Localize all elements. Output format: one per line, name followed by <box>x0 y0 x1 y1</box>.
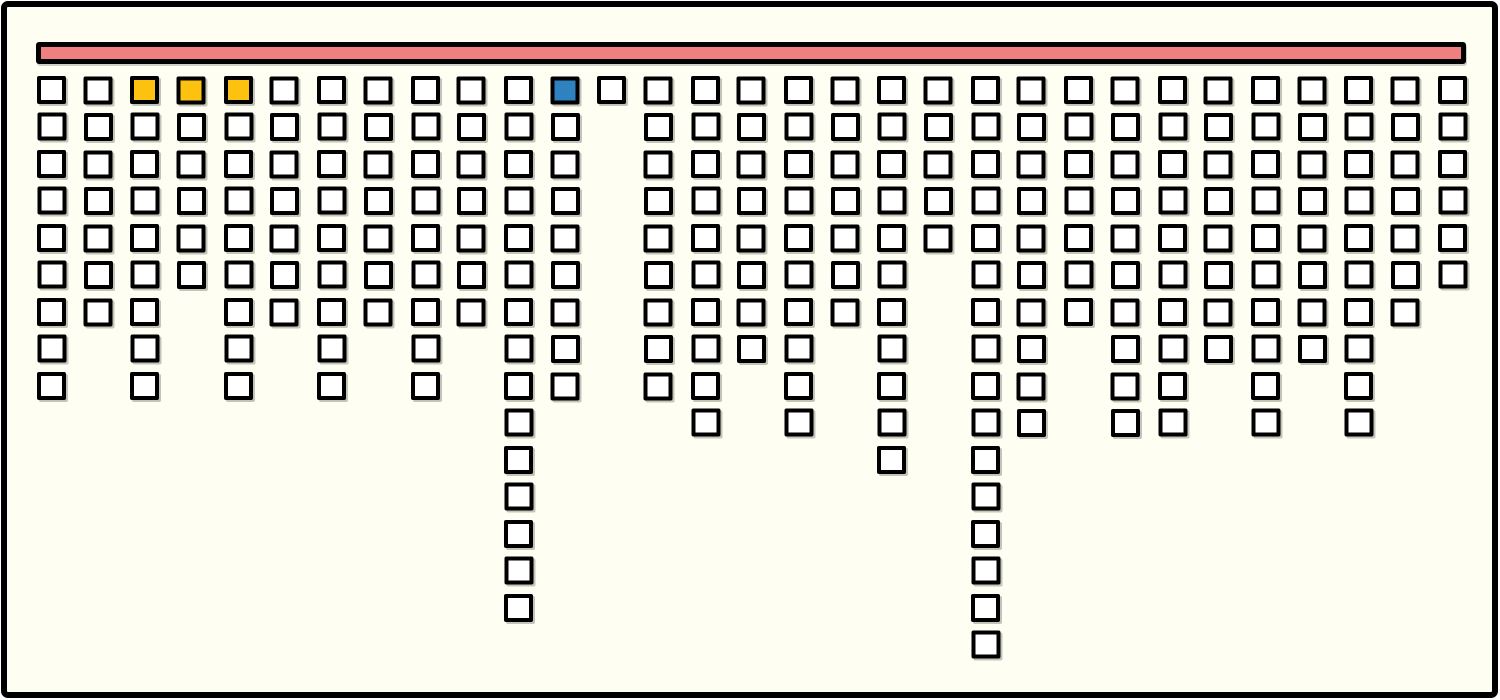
grid-cell <box>784 76 813 104</box>
grid-cell <box>504 372 533 400</box>
grid-cell <box>551 335 580 363</box>
grid-cell <box>1344 224 1373 252</box>
grid-cell <box>1298 113 1327 141</box>
waffle-column-28 <box>1298 76 1327 363</box>
grid-cell <box>691 335 720 363</box>
grid-cell <box>737 151 766 179</box>
grid-cell <box>1438 113 1467 141</box>
grid-cell <box>691 298 720 326</box>
grid-cell <box>1110 299 1139 327</box>
waffle-column-4 <box>177 76 206 289</box>
waffle-column-25 <box>1158 76 1187 437</box>
grid-cell <box>1110 225 1139 253</box>
grid-cell <box>1110 77 1139 105</box>
grid-cell <box>130 298 159 326</box>
waffle-column-13 <box>597 76 626 104</box>
grid-cell <box>457 77 486 105</box>
grid-cell <box>1017 409 1046 437</box>
grid-cell <box>1438 261 1467 289</box>
grid-cell <box>691 409 720 437</box>
grid-cell <box>1017 77 1046 105</box>
grid-cell <box>971 446 1000 474</box>
grid-cell <box>971 594 1000 622</box>
grid-cell <box>691 150 720 178</box>
grid-cell <box>785 261 814 289</box>
grid-cell <box>411 224 440 252</box>
highlighted-cell-gold <box>177 77 206 105</box>
waffle-grid <box>37 76 1467 659</box>
grid-cell <box>224 224 253 252</box>
grid-cell <box>318 113 347 141</box>
grid-cell <box>411 150 440 178</box>
grid-cell <box>878 409 907 437</box>
grid-cell <box>364 187 393 215</box>
grid-cell <box>177 225 206 253</box>
grid-cell <box>785 335 814 363</box>
grid-cell <box>131 261 160 289</box>
grid-cell <box>1298 335 1327 363</box>
grid-cell <box>830 77 859 105</box>
grid-cell <box>364 261 393 289</box>
grid-cell <box>270 113 299 141</box>
grid-cell <box>84 113 113 141</box>
grid-cell <box>971 113 1000 141</box>
highlighted-cell-gold <box>130 76 159 104</box>
grid-cell <box>691 261 720 289</box>
grid-cell <box>131 187 160 215</box>
grid-cell <box>411 298 440 326</box>
grid-cell <box>411 372 440 400</box>
grid-cell <box>504 594 533 622</box>
grid-cell <box>318 261 347 289</box>
grid-cell <box>457 187 486 215</box>
grid-cell <box>1064 298 1093 326</box>
grid-cell <box>224 113 253 141</box>
grid-cell <box>643 77 672 105</box>
grid-cell <box>1204 299 1233 327</box>
grid-cell <box>1251 409 1280 437</box>
grid-cell <box>177 261 206 289</box>
grid-cell <box>737 225 766 253</box>
grid-cell <box>785 187 814 215</box>
grid-cell <box>1344 372 1373 400</box>
grid-cell <box>644 261 673 289</box>
grid-cell <box>1017 187 1046 215</box>
grid-cell <box>1158 298 1187 326</box>
grid-cell <box>1110 373 1139 401</box>
grid-cell <box>1017 261 1046 289</box>
grid-cell <box>1204 77 1233 105</box>
waffle-column-9 <box>411 76 440 400</box>
grid-cell <box>131 335 160 363</box>
grid-cell <box>1158 224 1187 252</box>
grid-cell <box>37 224 66 252</box>
waffle-column-1 <box>37 76 66 400</box>
grid-cell <box>317 224 346 252</box>
grid-cell <box>737 187 766 215</box>
waffle-column-5 <box>224 76 253 400</box>
grid-cell <box>270 77 299 105</box>
grid-cell <box>551 261 580 289</box>
grid-cell <box>878 187 907 215</box>
grid-cell <box>1297 225 1326 253</box>
grid-cell <box>1251 187 1280 215</box>
grid-cell <box>644 335 673 363</box>
grid-cell <box>270 261 299 289</box>
waffle-column-19 <box>877 76 906 474</box>
grid-cell <box>644 113 673 141</box>
grid-cell <box>551 187 580 215</box>
grid-cell <box>1251 76 1280 104</box>
grid-cell <box>318 335 347 363</box>
grid-cell <box>270 151 299 179</box>
grid-cell <box>737 77 766 105</box>
waffle-column-21 <box>971 76 1000 659</box>
grid-cell <box>504 298 533 326</box>
grid-cell <box>877 446 906 474</box>
grid-cell <box>691 372 720 400</box>
grid-cell <box>224 335 253 363</box>
grid-cell <box>1251 298 1280 326</box>
grid-cell <box>457 299 486 327</box>
grid-cell <box>317 372 346 400</box>
grid-cell <box>784 372 813 400</box>
grid-cell <box>1065 187 1094 215</box>
grid-cell <box>550 151 579 179</box>
grid-cell <box>737 113 766 141</box>
waffle-column-6 <box>270 76 299 326</box>
grid-cell <box>1345 261 1374 289</box>
grid-cell <box>224 372 253 400</box>
grid-cell <box>504 483 533 511</box>
grid-cell <box>737 335 766 363</box>
grid-cell <box>1391 187 1420 215</box>
grid-cell <box>1111 187 1140 215</box>
grid-cell <box>830 151 859 179</box>
grid-cell <box>737 299 766 327</box>
grid-cell <box>364 113 393 141</box>
grid-cell <box>643 151 672 179</box>
waffle-column-7 <box>317 76 346 400</box>
grid-cell <box>1204 187 1233 215</box>
grid-cell <box>1204 225 1233 253</box>
grid-cell <box>411 335 440 363</box>
grid-cell <box>317 298 346 326</box>
grid-cell <box>1204 261 1233 289</box>
grid-cell <box>457 225 486 253</box>
grid-cell <box>1438 224 1467 252</box>
waffle-column-29 <box>1344 76 1373 437</box>
grid-cell <box>504 76 533 104</box>
grid-cell <box>1297 77 1326 105</box>
highlighted-cell-blue <box>550 77 579 105</box>
grid-cell <box>643 373 672 401</box>
grid-cell <box>971 335 1000 363</box>
grid-cell <box>504 261 533 289</box>
grid-cell <box>784 224 813 252</box>
grid-cell <box>1158 335 1187 363</box>
grid-cell <box>84 261 113 289</box>
grid-cell <box>318 187 347 215</box>
grid-cell <box>177 113 206 141</box>
grid-cell <box>84 187 113 215</box>
waffle-column-8 <box>364 76 393 326</box>
waffle-column-23 <box>1064 76 1093 326</box>
waffle-column-22 <box>1017 76 1046 437</box>
grid-cell <box>504 113 533 141</box>
grid-cell <box>411 76 440 104</box>
grid-cell <box>457 113 486 141</box>
grid-cell <box>504 409 533 437</box>
header-bar <box>36 42 1466 64</box>
waffle-column-2 <box>84 76 113 326</box>
grid-cell <box>504 557 533 585</box>
grid-cell <box>224 298 253 326</box>
grid-cell <box>878 335 907 363</box>
grid-cell <box>924 113 953 141</box>
grid-cell <box>643 225 672 253</box>
grid-cell <box>830 299 859 327</box>
grid-cell <box>1251 113 1280 141</box>
grid-cell <box>1111 409 1140 437</box>
grid-cell <box>363 225 392 253</box>
grid-cell <box>131 113 160 141</box>
grid-cell <box>363 151 392 179</box>
grid-cell <box>924 151 953 179</box>
grid-cell <box>597 76 626 104</box>
grid-cell <box>971 372 1000 400</box>
grid-cell <box>971 409 1000 437</box>
grid-cell <box>1297 299 1326 327</box>
grid-cell <box>1017 373 1046 401</box>
grid-cell <box>831 261 860 289</box>
grid-cell <box>1158 372 1187 400</box>
grid-cell <box>83 151 112 179</box>
grid-cell <box>224 187 253 215</box>
grid-cell <box>877 150 906 178</box>
grid-cell <box>38 335 67 363</box>
grid-cell <box>504 187 533 215</box>
waffle-column-30 <box>1391 76 1420 326</box>
grid-cell <box>971 224 1000 252</box>
chart-frame <box>1 1 1498 698</box>
grid-cell <box>130 150 159 178</box>
grid-cell <box>737 261 766 289</box>
waffle-column-16 <box>737 76 766 363</box>
grid-cell <box>130 224 159 252</box>
waffle-column-27 <box>1251 76 1280 437</box>
grid-cell <box>831 187 860 215</box>
grid-cell <box>877 224 906 252</box>
grid-cell <box>411 261 440 289</box>
grid-cell <box>785 409 814 437</box>
grid-cell <box>971 261 1000 289</box>
grid-cell <box>1390 151 1419 179</box>
grid-cell <box>1438 76 1467 104</box>
waffle-column-3 <box>130 76 159 400</box>
grid-cell <box>878 261 907 289</box>
grid-cell <box>38 187 67 215</box>
grid-cell <box>37 76 66 104</box>
waffle-column-20 <box>924 76 953 252</box>
waffle-column-24 <box>1111 76 1140 437</box>
grid-cell <box>504 520 533 548</box>
grid-cell <box>1345 113 1374 141</box>
grid-cell <box>504 335 533 363</box>
grid-cell <box>38 261 67 289</box>
grid-cell <box>1390 225 1419 253</box>
grid-cell <box>1390 299 1419 327</box>
grid-cell <box>1344 298 1373 326</box>
grid-cell <box>1064 76 1093 104</box>
grid-cell <box>457 151 486 179</box>
grid-cell <box>971 483 1000 511</box>
grid-cell <box>830 225 859 253</box>
grid-cell <box>363 299 392 327</box>
grid-cell <box>971 520 1000 548</box>
grid-cell <box>504 224 533 252</box>
grid-cell <box>691 187 720 215</box>
grid-cell <box>1438 187 1467 215</box>
grid-cell <box>1064 224 1093 252</box>
waffle-column-15 <box>691 76 720 437</box>
grid-cell <box>1111 113 1140 141</box>
grid-cell <box>550 373 579 401</box>
grid-cell <box>1017 113 1046 141</box>
grid-cell <box>1345 409 1374 437</box>
grid-cell <box>785 113 814 141</box>
grid-cell <box>1017 299 1046 327</box>
grid-cell <box>37 150 66 178</box>
grid-cell <box>37 298 66 326</box>
grid-cell <box>1158 113 1187 141</box>
grid-cell <box>877 372 906 400</box>
grid-cell <box>1111 261 1140 289</box>
grid-cell <box>971 557 1000 585</box>
grid-cell <box>1111 335 1140 363</box>
grid-cell <box>1344 76 1373 104</box>
grid-cell <box>504 150 533 178</box>
grid-cell <box>971 298 1000 326</box>
grid-cell <box>550 225 579 253</box>
grid-cell <box>878 113 907 141</box>
grid-cell <box>1298 187 1327 215</box>
grid-cell <box>1251 150 1280 178</box>
grid-cell <box>177 151 206 179</box>
grid-cell <box>177 187 206 215</box>
grid-cell <box>1345 187 1374 215</box>
grid-cell <box>224 150 253 178</box>
grid-cell <box>1251 335 1280 363</box>
waffle-column-18 <box>831 76 860 326</box>
waffle-column-12 <box>551 76 580 400</box>
grid-cell <box>270 225 299 253</box>
grid-cell <box>224 261 253 289</box>
grid-cell <box>1158 187 1187 215</box>
grid-cell <box>1065 261 1094 289</box>
grid-cell <box>1391 261 1420 289</box>
grid-cell <box>1064 150 1093 178</box>
grid-cell <box>924 77 953 105</box>
grid-cell <box>1297 151 1326 179</box>
grid-cell <box>1344 150 1373 178</box>
grid-cell <box>1158 409 1187 437</box>
grid-cell <box>1251 372 1280 400</box>
grid-cell <box>971 76 1000 104</box>
grid-cell <box>831 113 860 141</box>
grid-cell <box>971 150 1000 178</box>
grid-cell <box>1204 151 1233 179</box>
grid-cell <box>1158 261 1187 289</box>
grid-cell <box>1251 224 1280 252</box>
grid-cell <box>784 150 813 178</box>
grid-cell <box>1158 150 1187 178</box>
grid-cell <box>130 372 159 400</box>
grid-cell <box>971 631 1000 659</box>
grid-cell <box>551 113 580 141</box>
grid-cell <box>317 76 346 104</box>
waffle-column-26 <box>1204 76 1233 363</box>
grid-cell <box>691 224 720 252</box>
grid-cell <box>317 150 346 178</box>
grid-cell <box>270 187 299 215</box>
grid-cell <box>38 113 67 141</box>
grid-cell <box>457 261 486 289</box>
waffle-column-31 <box>1438 76 1467 289</box>
grid-cell <box>270 299 299 327</box>
waffle-column-11 <box>504 76 533 622</box>
grid-cell <box>83 77 112 105</box>
grid-cell <box>691 76 720 104</box>
grid-cell <box>1017 335 1046 363</box>
grid-cell <box>644 187 673 215</box>
grid-cell <box>504 446 533 474</box>
grid-cell <box>1017 225 1046 253</box>
waffle-column-14 <box>644 76 673 400</box>
grid-cell <box>691 113 720 141</box>
grid-cell <box>1065 113 1094 141</box>
grid-cell <box>1298 261 1327 289</box>
highlighted-cell-gold <box>224 76 253 104</box>
waffle-column-10 <box>457 76 486 326</box>
grid-cell <box>1345 335 1374 363</box>
grid-cell <box>643 299 672 327</box>
grid-cell <box>550 299 579 327</box>
grid-cell <box>924 187 953 215</box>
grid-cell <box>877 298 906 326</box>
grid-cell <box>971 187 1000 215</box>
grid-cell <box>411 113 440 141</box>
grid-cell <box>877 76 906 104</box>
grid-cell <box>1251 261 1280 289</box>
grid-cell <box>1158 76 1187 104</box>
grid-cell <box>1110 151 1139 179</box>
waffle-column-17 <box>784 76 813 437</box>
grid-cell <box>1204 113 1233 141</box>
grid-cell <box>411 187 440 215</box>
grid-cell <box>784 298 813 326</box>
grid-cell <box>1390 77 1419 105</box>
grid-cell <box>1204 335 1233 363</box>
grid-cell <box>37 372 66 400</box>
grid-cell <box>1438 150 1467 178</box>
grid-cell <box>1391 113 1420 141</box>
grid-cell <box>83 225 112 253</box>
grid-cell <box>83 299 112 327</box>
grid-cell <box>924 225 953 253</box>
grid-cell <box>1017 151 1046 179</box>
grid-cell <box>363 77 392 105</box>
